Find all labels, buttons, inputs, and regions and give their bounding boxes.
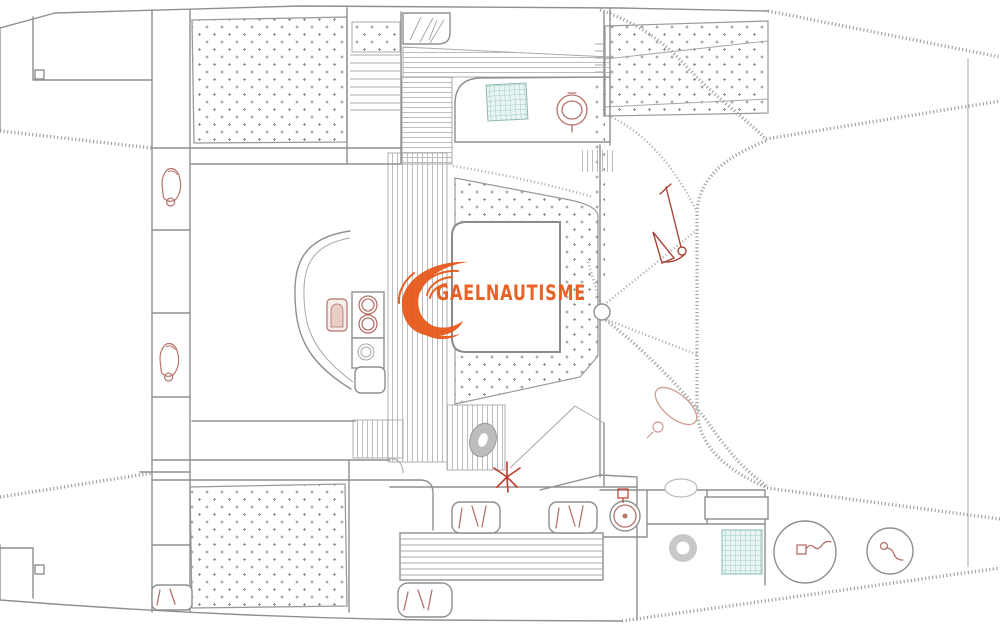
companionway-stripes bbox=[353, 420, 403, 458]
side-deck-corner-hatched bbox=[605, 114, 696, 210]
steps-shelves bbox=[350, 55, 400, 110]
bridle-wire bbox=[604, 229, 698, 305]
galley-sink-icon bbox=[562, 101, 582, 119]
bridle-wire bbox=[605, 319, 698, 355]
port-hull-sheerline bbox=[55, 6, 768, 13]
fore-cabin-mattress bbox=[192, 17, 347, 143]
port-transom bbox=[0, 13, 55, 131]
cockpit-locker bbox=[705, 497, 768, 519]
anchor-icon bbox=[653, 184, 686, 263]
trampoline-bottom-edge bbox=[767, 488, 1000, 519]
corridor-stripes bbox=[580, 150, 613, 172]
port-quarter-hatched bbox=[0, 473, 152, 497]
galley-sink-tap bbox=[568, 93, 576, 132]
port-quarter-hatched bbox=[0, 131, 152, 148]
fore-cushion-strip bbox=[352, 22, 400, 52]
bow-seats-cushions bbox=[605, 21, 768, 116]
aft-cabin-mattress bbox=[190, 484, 347, 608]
forepeak-divider bbox=[33, 17, 152, 80]
round-table-icon bbox=[774, 521, 836, 583]
sink-unit bbox=[352, 338, 384, 368]
round-table-icon bbox=[867, 528, 913, 574]
toilet-icon bbox=[155, 342, 182, 382]
catamaran-plan-svg: GAELNAUTISME bbox=[0, 0, 1000, 625]
forepeak-divider bbox=[0, 548, 33, 598]
deck-fitting bbox=[35, 565, 44, 574]
fender-icon bbox=[647, 381, 703, 438]
bridle-ring bbox=[594, 304, 610, 320]
cockpit-sink-icon bbox=[610, 489, 640, 531]
shower-wall bbox=[510, 406, 604, 468]
deck-hatch-oval bbox=[665, 479, 697, 497]
galley-locker bbox=[355, 367, 385, 393]
walkway-dots bbox=[591, 82, 605, 288]
transom-steps bbox=[400, 533, 603, 580]
toilet-icon bbox=[157, 167, 184, 207]
life-ring-icon bbox=[669, 534, 697, 562]
trampoline-top-edge bbox=[766, 101, 1000, 139]
trampoline-inner-edge bbox=[697, 141, 767, 488]
watermark-text: GAELNAUTISME bbox=[436, 281, 586, 306]
starboard-sheer-hatched bbox=[768, 11, 1000, 57]
boat-plan-canvas: GAELNAUTISME bbox=[0, 0, 1000, 625]
galley-counter-slats bbox=[403, 47, 610, 77]
hatch-grid-icon bbox=[486, 83, 528, 121]
deck-fitting bbox=[35, 70, 44, 79]
oven-door bbox=[331, 304, 343, 327]
hatch-grid-icon bbox=[722, 530, 762, 574]
galley-side-slats bbox=[402, 77, 452, 164]
